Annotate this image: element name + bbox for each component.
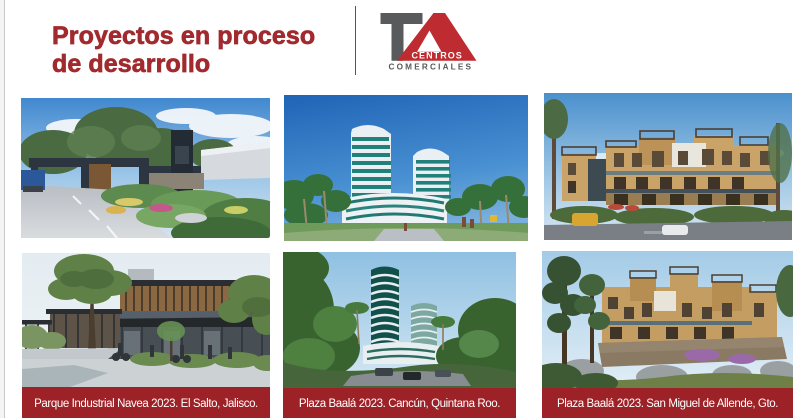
- svg-text:COMERCIALES: COMERCIALES: [389, 62, 474, 71]
- svg-text:CENTROS: CENTROS: [412, 50, 463, 60]
